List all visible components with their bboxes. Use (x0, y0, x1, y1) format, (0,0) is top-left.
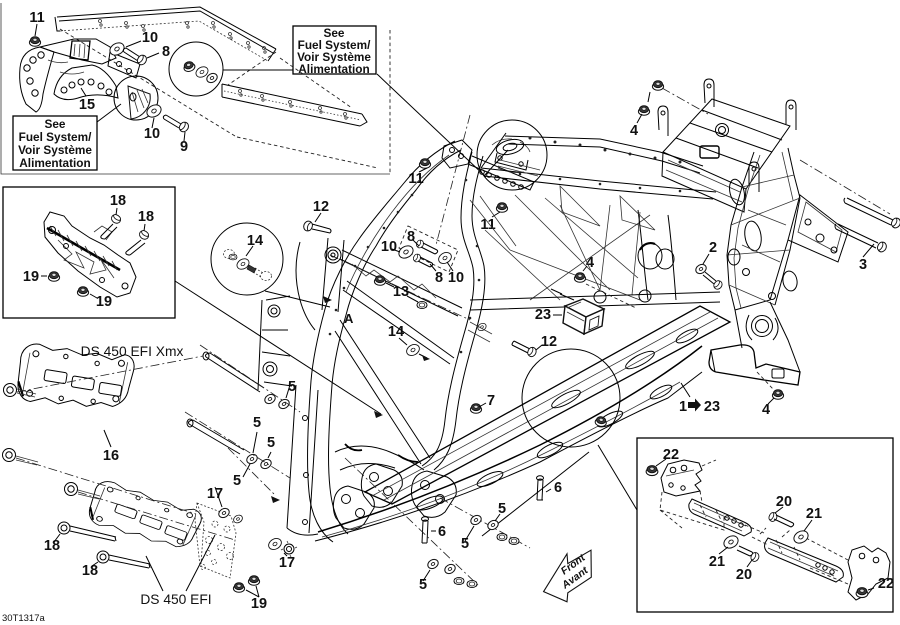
svg-text:18: 18 (110, 193, 126, 209)
svg-text:15: 15 (79, 97, 95, 113)
svg-text:5: 5 (233, 473, 241, 489)
svg-text:14: 14 (247, 233, 263, 249)
svg-text:23: 23 (704, 399, 720, 415)
svg-text:9: 9 (180, 139, 188, 155)
svg-text:8: 8 (435, 270, 443, 286)
svg-text:10: 10 (381, 239, 397, 255)
svg-text:6: 6 (438, 524, 446, 540)
svg-text:5: 5 (419, 577, 427, 593)
svg-text:DS 450 EFI: DS 450 EFI (140, 592, 211, 607)
svg-text:5: 5 (253, 415, 261, 431)
svg-text:Alimentation: Alimentation (19, 156, 90, 170)
svg-text:18: 18 (82, 563, 98, 579)
svg-text:17: 17 (279, 555, 295, 571)
svg-text:5: 5 (461, 536, 469, 552)
svg-text:11: 11 (29, 10, 44, 26)
svg-text:12: 12 (541, 334, 557, 350)
svg-text:22: 22 (663, 447, 679, 463)
svg-text:Alimentation: Alimentation (298, 62, 369, 76)
svg-text:20: 20 (736, 567, 752, 583)
svg-text:Voir Système: Voir Système (18, 143, 92, 157)
svg-text:19: 19 (96, 294, 112, 310)
svg-text:1: 1 (679, 399, 687, 415)
svg-text:13: 13 (393, 284, 409, 300)
svg-text:11: 11 (408, 171, 423, 187)
svg-text:8: 8 (407, 229, 415, 245)
svg-text:DS 450 EFI Xmx: DS 450 EFI Xmx (81, 344, 184, 359)
svg-text:Fuel System/: Fuel System/ (19, 130, 92, 144)
svg-text:3: 3 (859, 257, 867, 273)
svg-text:4: 4 (762, 402, 770, 418)
svg-text:30T1317a: 30T1317a (2, 613, 46, 624)
svg-text:4: 4 (630, 123, 638, 139)
svg-text:5: 5 (267, 435, 275, 451)
svg-text:22: 22 (878, 576, 894, 592)
svg-text:16: 16 (103, 448, 119, 464)
svg-text:See: See (45, 117, 66, 131)
svg-text:7: 7 (487, 393, 495, 409)
svg-text:10: 10 (142, 30, 158, 46)
svg-text:23: 23 (535, 307, 551, 323)
svg-text:A: A (344, 311, 354, 326)
svg-text:21: 21 (709, 554, 725, 570)
svg-text:18: 18 (138, 209, 154, 225)
svg-text:21: 21 (806, 506, 822, 522)
svg-text:18: 18 (44, 538, 60, 554)
svg-text:8: 8 (162, 44, 170, 60)
svg-text:12: 12 (313, 199, 329, 215)
svg-text:2: 2 (709, 240, 717, 256)
svg-text:10: 10 (448, 270, 464, 286)
svg-text:19: 19 (251, 596, 267, 612)
svg-text:20: 20 (776, 494, 792, 510)
svg-text:11: 11 (480, 217, 495, 233)
svg-text:10: 10 (144, 126, 160, 142)
svg-text:19: 19 (23, 269, 39, 285)
svg-text:6: 6 (554, 480, 562, 496)
